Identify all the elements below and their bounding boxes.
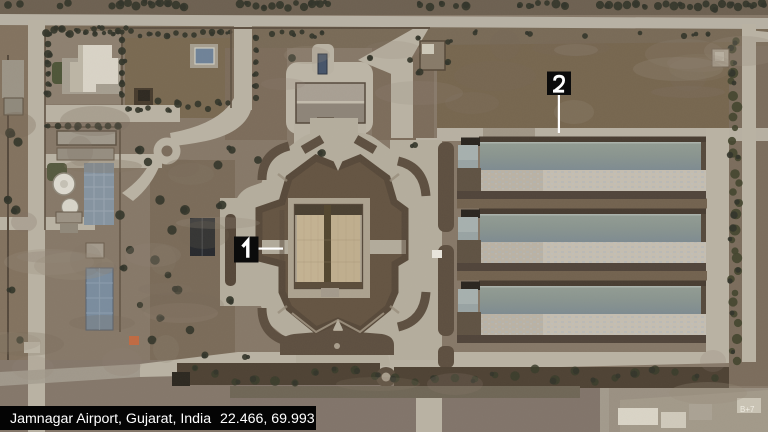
svg-text:22.466, 69.993: 22.466, 69.993 — [220, 411, 315, 427]
svg-text:Jamnagar Airport, Gujarat, Ind: Jamnagar Airport, Gujarat, India — [10, 411, 211, 427]
